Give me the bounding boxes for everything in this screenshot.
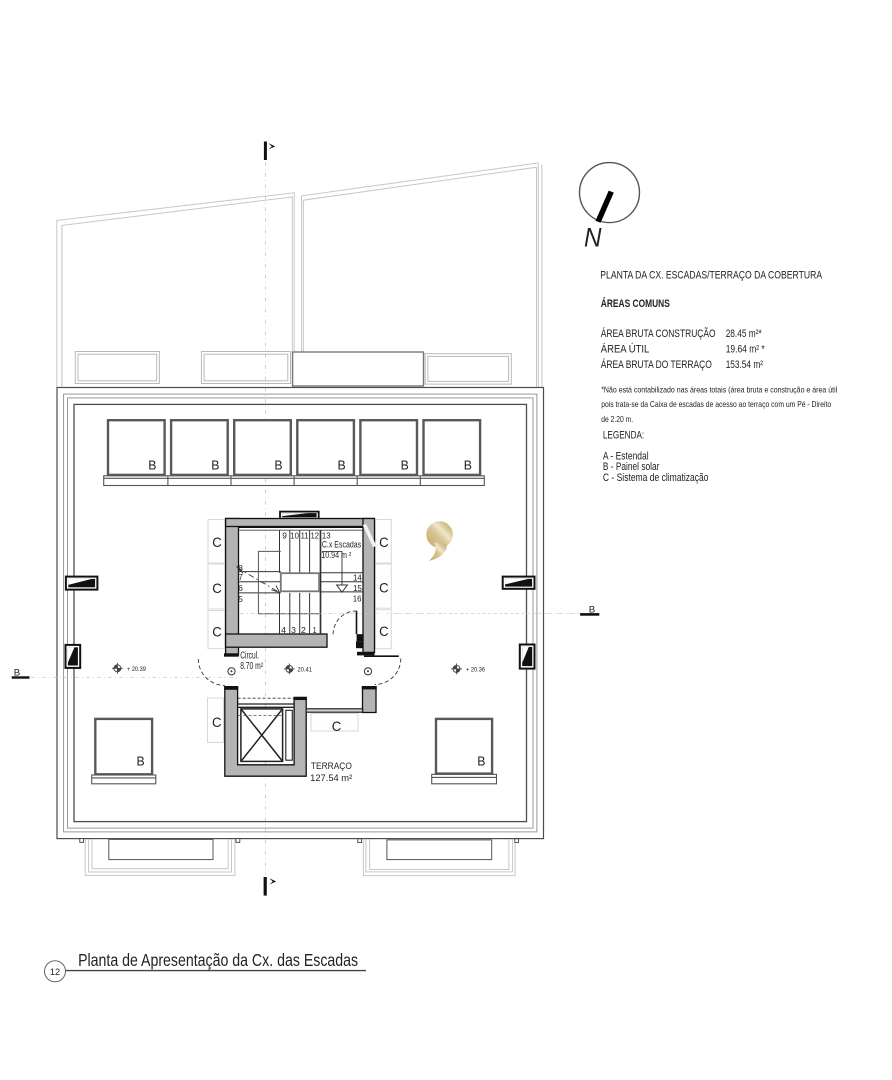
svg-text:3: 3 — [291, 625, 296, 635]
svg-text:10: 10 — [290, 530, 299, 540]
svg-text:C: C — [379, 579, 389, 595]
svg-text:LEGENDA:: LEGENDA: — [603, 430, 644, 442]
svg-text:B: B — [338, 458, 346, 472]
svg-text:+ 20.39: + 20.39 — [127, 666, 146, 673]
svg-text:153.54 m²: 153.54 m² — [726, 359, 763, 371]
svg-text:C - Sistema de climatização: C - Sistema de climatização — [603, 472, 709, 484]
svg-text:6: 6 — [238, 583, 243, 593]
svg-text:ÁREA BRUTA CONSTRUÇÃO: ÁREA BRUTA CONSTRUÇÃO — [601, 327, 716, 340]
svg-text:TERRAÇO: TERRAÇO — [311, 761, 352, 771]
svg-text:10.94 m ²: 10.94 m ² — [321, 550, 351, 560]
svg-text:2: 2 — [301, 625, 306, 635]
svg-text:+ 20.36: + 20.36 — [466, 667, 485, 674]
svg-text:ÁREA BRUTA DO TERRAÇO: ÁREA BRUTA DO TERRAÇO — [601, 358, 712, 371]
svg-text:B: B — [14, 667, 20, 677]
svg-text:C: C — [379, 623, 389, 639]
svg-text:B: B — [464, 458, 472, 472]
svg-text:Planta de Apresentação da Cx.: Planta de Apresentação da Cx. das Escada… — [78, 950, 358, 970]
svg-text:B: B — [148, 458, 156, 472]
svg-text:B: B — [137, 754, 145, 768]
svg-text:de 2.20 m.: de 2.20 m. — [601, 414, 633, 424]
svg-text:pois trata-se da Caixa de esca: pois trata-se da Caixa de escadas de ace… — [601, 399, 831, 409]
svg-text:1: 1 — [313, 625, 317, 635]
svg-text:Circul.: Circul. — [240, 650, 259, 661]
svg-text:28.45 m²*: 28.45 m²* — [726, 328, 762, 340]
svg-text:B: B — [211, 458, 219, 472]
svg-text:ÁREAS COMUNS: ÁREAS COMUNS — [601, 297, 670, 310]
svg-text:B: B — [589, 604, 596, 614]
svg-text:16: 16 — [353, 594, 362, 604]
svg-text:12: 12 — [311, 530, 320, 540]
svg-text:B: B — [401, 458, 409, 472]
svg-text:7: 7 — [238, 572, 243, 582]
svg-text:PLANTA DA CX. ESCADAS/TERRAÇO: PLANTA DA CX. ESCADAS/TERRAÇO DA COBERTU… — [600, 270, 822, 282]
svg-text:C: C — [212, 624, 222, 640]
svg-text:N: N — [584, 223, 602, 253]
svg-text:20.41: 20.41 — [297, 667, 312, 674]
svg-text:12: 12 — [50, 967, 60, 977]
svg-text:5: 5 — [238, 594, 243, 604]
svg-text:127.54 m²: 127.54 m² — [310, 773, 352, 783]
svg-text:C: C — [212, 714, 222, 730]
svg-text:11: 11 — [301, 530, 309, 540]
svg-text:14: 14 — [353, 573, 362, 583]
svg-text:C: C — [212, 580, 222, 596]
svg-text:4: 4 — [281, 625, 286, 635]
svg-text:8.70 m²: 8.70 m² — [240, 661, 263, 672]
svg-text:*Não está contabilizado nas ár: *Não está contabilizado nas áreas totais… — [601, 384, 837, 394]
svg-text:15: 15 — [353, 583, 362, 593]
svg-text:B: B — [477, 754, 485, 768]
svg-text:C: C — [212, 534, 222, 550]
svg-text:ÁREA ÚTIL: ÁREA ÚTIL — [601, 342, 650, 355]
svg-text:C: C — [332, 718, 342, 734]
svg-text:C.x Escadas: C.x Escadas — [322, 540, 362, 550]
svg-text:19.64 m² *: 19.64 m² * — [726, 343, 765, 355]
svg-text:B: B — [274, 458, 282, 472]
svg-text:9: 9 — [282, 530, 287, 540]
svg-text:C: C — [379, 534, 389, 550]
